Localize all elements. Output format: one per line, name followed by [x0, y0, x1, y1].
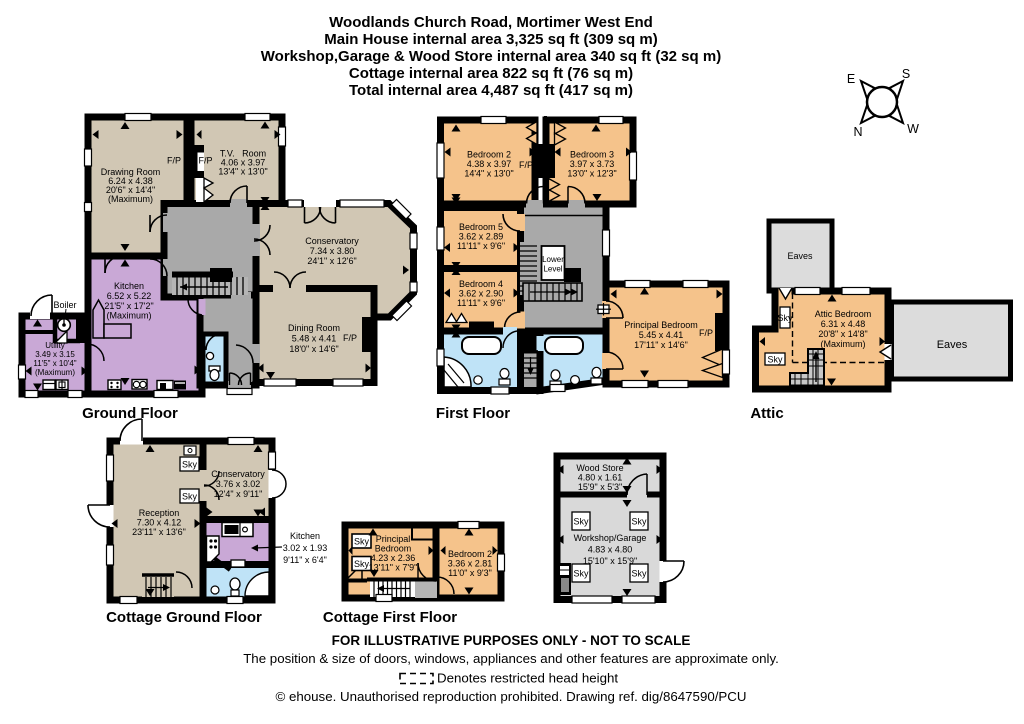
- svg-text:3.76 x 3.02: 3.76 x 3.02: [216, 479, 261, 489]
- svg-text:Cottage First Floor: Cottage First Floor: [323, 609, 457, 626]
- svg-text:Wood Store: Wood Store: [576, 463, 623, 473]
- svg-text:Dining Room: Dining Room: [288, 323, 340, 333]
- svg-text:11'5" x 10'4": 11'5" x 10'4": [33, 359, 76, 368]
- svg-text:12'4" x 9'11": 12'4" x 9'11": [214, 489, 263, 499]
- svg-text:11'11" x 9'6": 11'11" x 9'6": [457, 298, 505, 308]
- svg-text:(Maximum): (Maximum): [821, 339, 866, 349]
- svg-text:First Floor: First Floor: [436, 405, 510, 422]
- svg-text:(Maximum): (Maximum): [35, 368, 75, 377]
- svg-text:Sky: Sky: [182, 460, 198, 470]
- svg-text:3.02 x 1.93: 3.02 x 1.93: [283, 543, 328, 553]
- svg-text:9'11" x 6'4": 9'11" x 6'4": [283, 555, 327, 565]
- svg-text:F/P: F/P: [699, 328, 713, 338]
- svg-text:14'4" x 13'0": 14'4" x 13'0": [464, 169, 513, 179]
- svg-text:3.62 x 2.89: 3.62 x 2.89: [459, 232, 504, 242]
- svg-text:Kitchen: Kitchen: [290, 531, 320, 541]
- svg-text:Level: Level: [543, 265, 562, 274]
- svg-text:11'11" x 9'6": 11'11" x 9'6": [457, 241, 505, 251]
- svg-text:4.83 x 4.80: 4.83 x 4.80: [588, 545, 633, 555]
- svg-text:3.97 x 3.73: 3.97 x 3.73: [570, 159, 615, 169]
- svg-text:6.31 x 4.48: 6.31 x 4.48: [821, 319, 866, 329]
- svg-text:Workshop/Garage: Workshop/Garage: [574, 533, 647, 543]
- svg-text:Attic: Attic: [750, 405, 783, 422]
- svg-text:Sky: Sky: [573, 569, 589, 579]
- svg-text:7.30 x 4.12: 7.30 x 4.12: [137, 518, 182, 528]
- svg-text:13'4" x 13'0": 13'4" x 13'0": [218, 167, 267, 177]
- svg-text:Sky: Sky: [573, 517, 589, 527]
- svg-text:6.52 x 5.22: 6.52 x 5.22: [107, 291, 152, 301]
- svg-text:17'11" x 14'6": 17'11" x 14'6": [634, 340, 688, 350]
- svg-text:4.23 x 2.36: 4.23 x 2.36: [371, 553, 416, 563]
- svg-text:Principal Bedroom: Principal Bedroom: [624, 320, 698, 330]
- svg-text:Boiler: Boiler: [53, 300, 76, 310]
- svg-text:3.49 x 3.15: 3.49 x 3.15: [35, 350, 75, 359]
- svg-text:13'11" x 7'9": 13'11" x 7'9": [369, 563, 418, 573]
- svg-text:Bedroom: Bedroom: [375, 544, 412, 554]
- svg-text:Sky: Sky: [354, 559, 370, 569]
- svg-text:13'0" x 12'3": 13'0" x 12'3": [567, 169, 616, 179]
- svg-text:Cottage Ground Floor: Cottage Ground Floor: [106, 609, 262, 626]
- svg-text:© ehouse. Unauthorised reprodu: © ehouse. Unauthorised reproduction proh…: [275, 689, 746, 704]
- svg-text:Conservatory: Conservatory: [305, 236, 359, 246]
- svg-text:F/P: F/P: [519, 160, 533, 170]
- svg-text:Reception: Reception: [139, 508, 180, 518]
- svg-text:23'11" x 13'6": 23'11" x 13'6": [132, 527, 186, 537]
- svg-text:18'0" x 14'6": 18'0" x 14'6": [289, 344, 338, 354]
- svg-text:3.62 x 2.90: 3.62 x 2.90: [459, 289, 504, 299]
- svg-text:F/P: F/P: [343, 333, 357, 343]
- svg-text:Sky: Sky: [777, 313, 793, 323]
- svg-text:7.34 x 3.80: 7.34 x 3.80: [310, 246, 355, 256]
- svg-text:Lower: Lower: [542, 255, 564, 264]
- svg-text:Eaves: Eaves: [937, 339, 968, 351]
- svg-text:24'1" x 12'6": 24'1" x 12'6": [307, 256, 356, 266]
- svg-text:Sky: Sky: [631, 569, 647, 579]
- svg-text:Kitchen: Kitchen: [114, 281, 144, 291]
- svg-text:Bedroom 2: Bedroom 2: [467, 150, 511, 160]
- svg-text:20'8" x 14'8": 20'8" x 14'8": [818, 329, 867, 339]
- svg-text:Sky: Sky: [767, 355, 783, 365]
- svg-text:F/P: F/P: [167, 156, 181, 166]
- svg-text:(Maximum): (Maximum): [108, 194, 153, 204]
- svg-text:Sky: Sky: [354, 537, 370, 547]
- svg-text:Bedroom 3: Bedroom 3: [570, 150, 614, 160]
- svg-text:Woodlands Church Road, Mortime: Woodlands Church Road, Mortimer West End: [329, 14, 653, 31]
- svg-text:S: S: [902, 67, 910, 81]
- svg-text:Ground Floor: Ground Floor: [82, 405, 178, 422]
- svg-text:Total internal area 4,487 sq f: Total internal area 4,487 sq ft (417 sq …: [349, 82, 633, 99]
- svg-text:15'9" x 5'3": 15'9" x 5'3": [578, 482, 622, 492]
- svg-text:5.45 x 4.41: 5.45 x 4.41: [639, 330, 684, 340]
- svg-text:Main House internal area 3,325: Main House internal area 3,325 sq ft (30…: [324, 31, 657, 48]
- svg-text:W: W: [907, 122, 919, 136]
- svg-text:3.36 x 2.81: 3.36 x 2.81: [448, 559, 493, 569]
- svg-text:Workshop,Garage & Wood Store: Workshop,Garage & Wood Store internal ar…: [261, 48, 721, 65]
- svg-text:Denotes restricted head height: Denotes restricted head height: [437, 671, 618, 686]
- svg-text:FOR ILLUSTRATIVE PURPOSES ONLY: FOR ILLUSTRATIVE PURPOSES ONLY - NOT TO …: [332, 633, 691, 648]
- svg-text:F/P: F/P: [198, 156, 212, 166]
- svg-text:Bedroom 4: Bedroom 4: [459, 279, 503, 289]
- svg-text:Sky: Sky: [182, 492, 198, 502]
- svg-text:Attic Bedroom: Attic Bedroom: [815, 309, 872, 319]
- svg-text:Sky: Sky: [631, 517, 647, 527]
- svg-text:4.80 x 1.61: 4.80 x 1.61: [578, 473, 623, 483]
- svg-text:(Maximum): (Maximum): [107, 311, 152, 321]
- svg-text:Principal: Principal: [376, 534, 411, 544]
- svg-text:Eaves: Eaves: [787, 251, 813, 261]
- svg-text:11'0" x 9'3": 11'0" x 9'3": [448, 568, 492, 578]
- svg-text:21'5" x 17'2": 21'5" x 17'2": [104, 301, 153, 311]
- svg-text:Utility: Utility: [45, 341, 65, 350]
- svg-text:The position & size of doors,: The position & size of doors, windows, a…: [243, 651, 779, 666]
- svg-text:Bedroom 2: Bedroom 2: [448, 549, 492, 559]
- svg-text:4.38 x 3.97: 4.38 x 3.97: [467, 159, 512, 169]
- svg-text:Bedroom 5: Bedroom 5: [459, 222, 503, 232]
- svg-text:Conservatory: Conservatory: [211, 469, 265, 479]
- svg-text:N: N: [853, 125, 862, 139]
- svg-text:5.48 x 4.41: 5.48 x 4.41: [292, 334, 337, 344]
- svg-text:15'10" x 15'9": 15'10" x 15'9": [583, 556, 637, 566]
- svg-text:Cottage internal area 822 sq f: Cottage internal area 822 sq ft (76 sq m…: [349, 65, 633, 82]
- svg-text:E: E: [847, 72, 855, 86]
